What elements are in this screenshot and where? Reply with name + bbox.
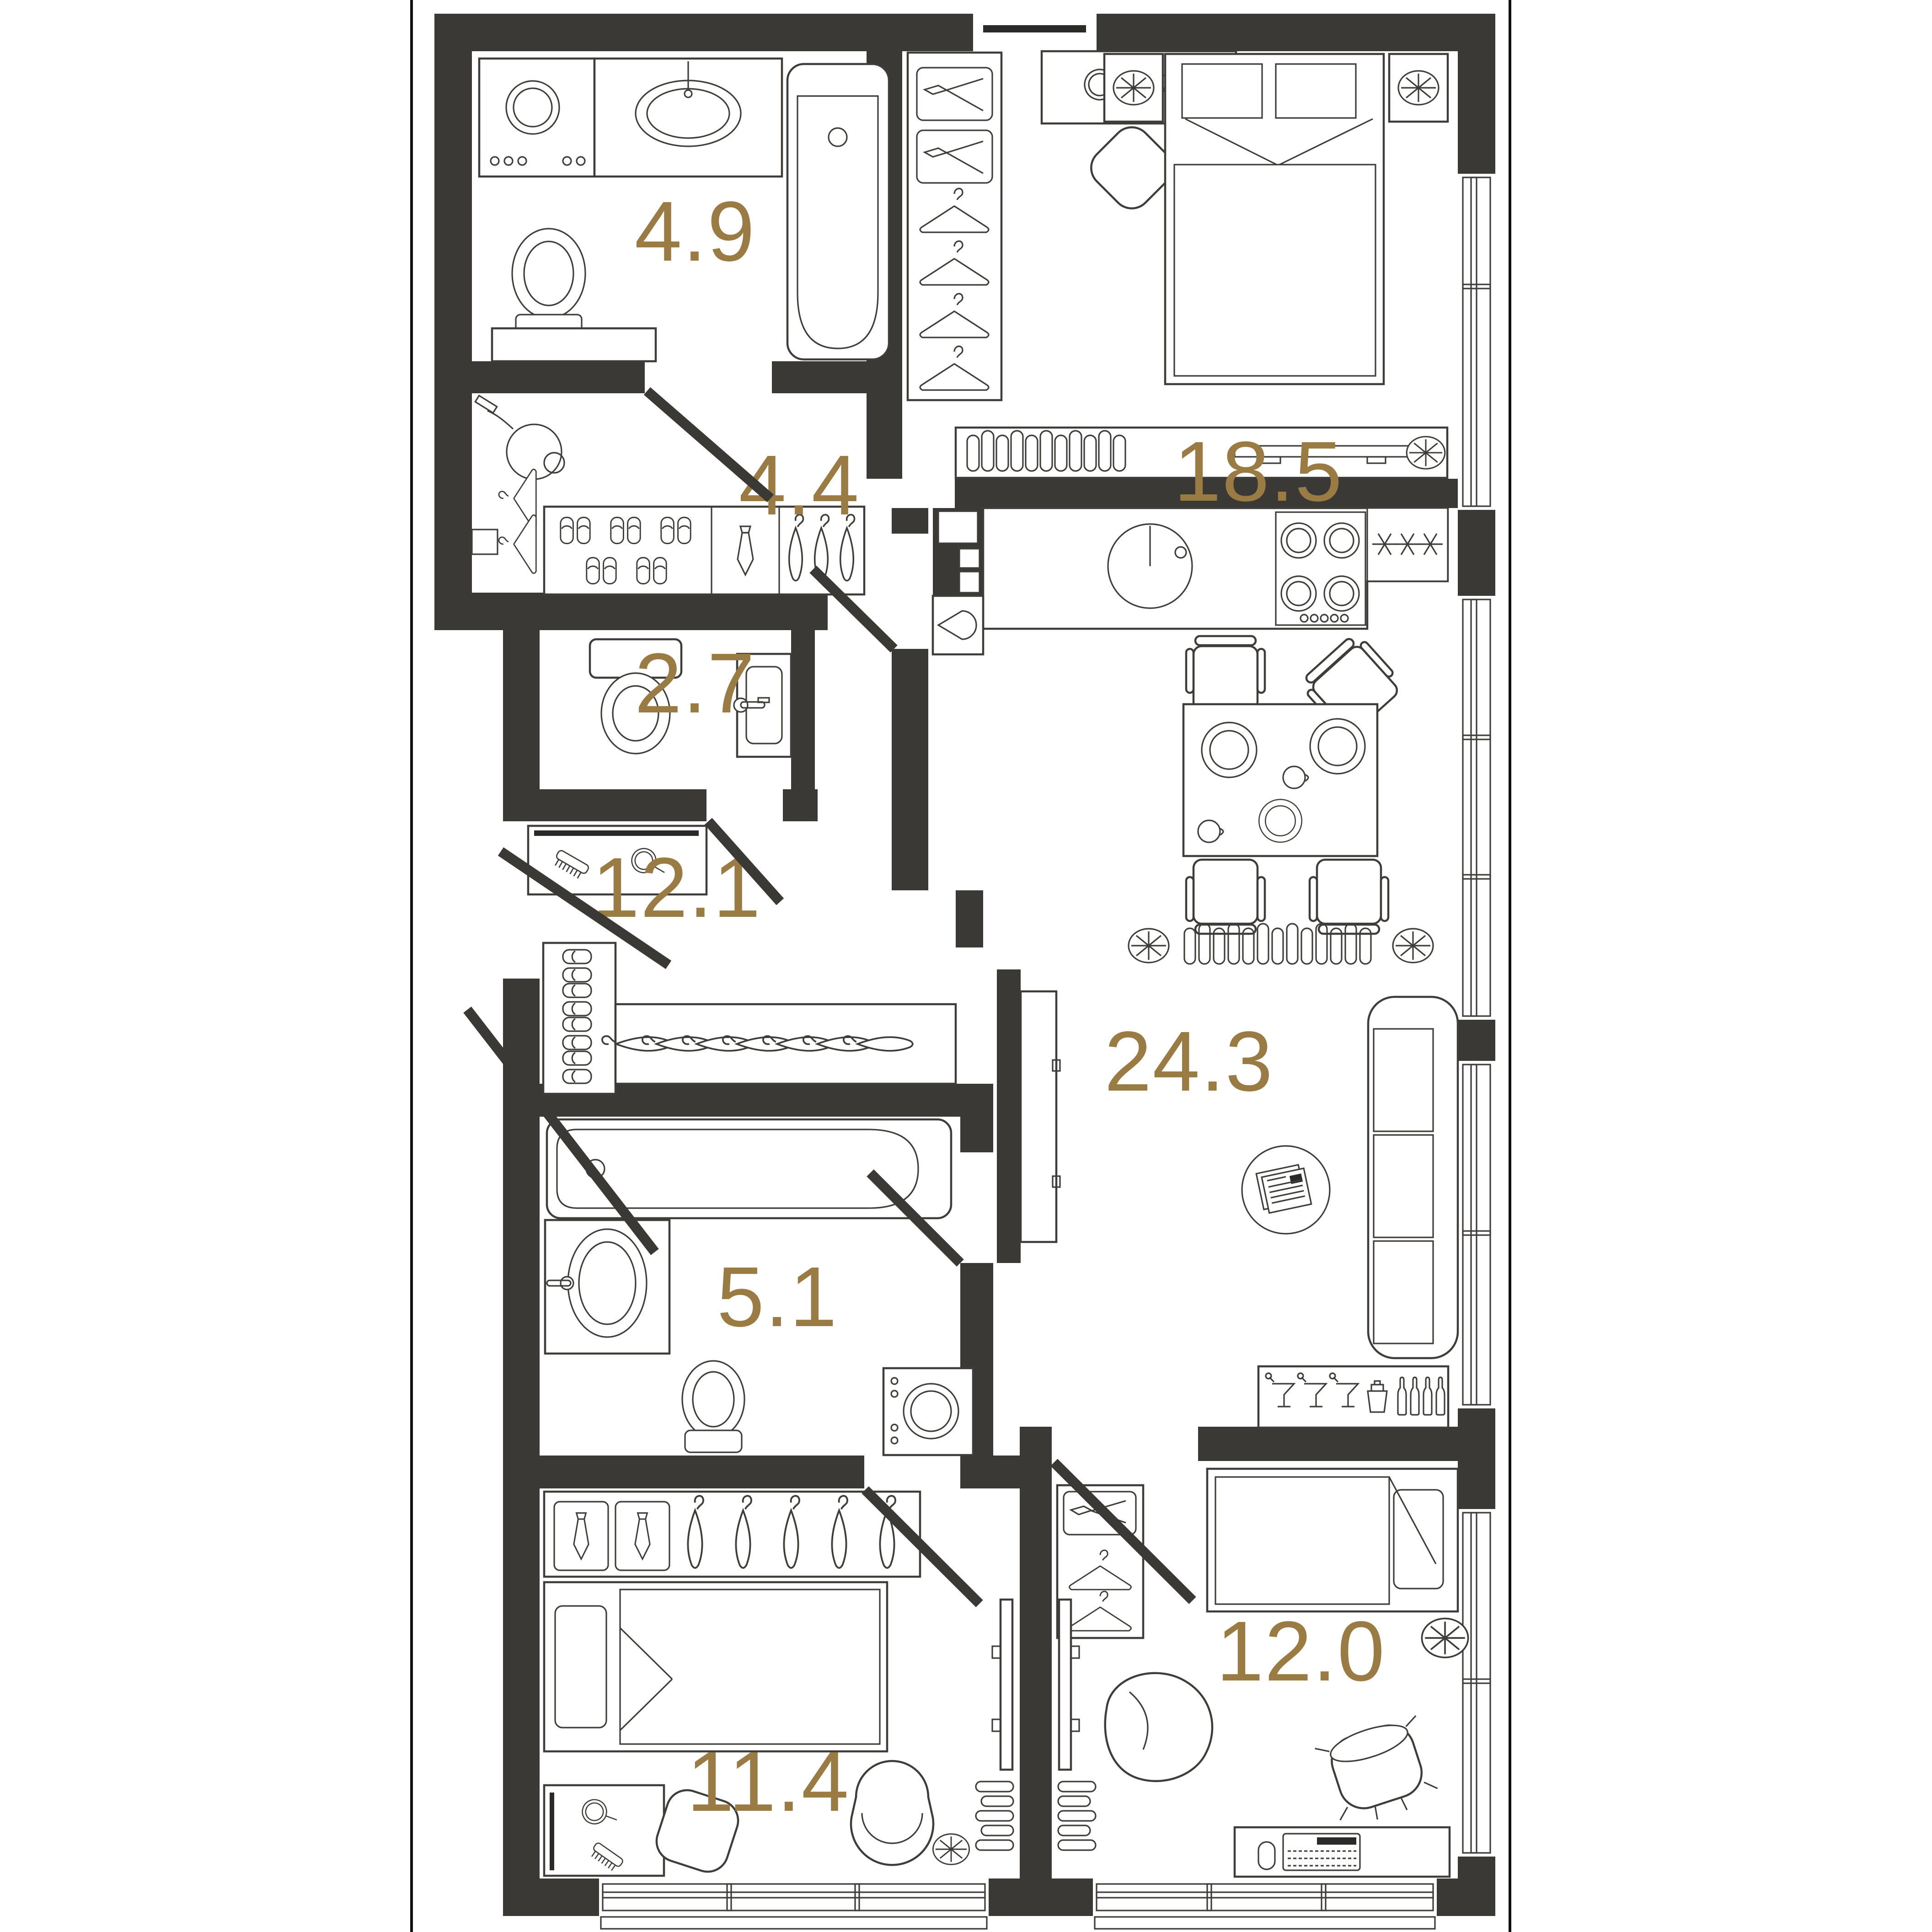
duct-niche [959,549,979,568]
window-bedroom-main-icon [1458,174,1495,510]
single-bed-icon [1207,1469,1458,1611]
radiator-icon [1058,1782,1096,1850]
single-bed-icon [544,1582,887,1751]
room-area-label-bedroom-left: 11.4 [687,1734,850,1829]
room-area-label-bedroom-right: 12.0 [1216,1604,1386,1699]
shoe-shelf-icon [543,943,615,1094]
radiator-icon [933,1782,1013,1864]
duct-niche [938,511,978,543]
fan-icon [1407,437,1445,469]
bean-bag-icon [1105,1673,1212,1781]
wardrobe-icon [544,1492,920,1577]
plate-icon [1202,722,1257,777]
hanger-icon [499,515,536,573]
tv-icon [1021,991,1060,1242]
washing-machine-icon [479,59,594,177]
plate-icon [1310,719,1365,774]
stove-icon [1276,512,1365,625]
toilet-icon [682,1361,744,1452]
corner-duct-box [472,530,498,554]
bathroom-counter [492,328,656,361]
fan-icon [1129,929,1169,963]
stool-icon [1314,1714,1443,1831]
newspaper-table-icon [1242,1146,1330,1234]
window-kitchen-icon [1458,596,1495,1020]
dressing-table-icon [544,1785,664,1876]
window-bedroom-left-icon [599,1878,989,1929]
window-living-icon [1458,1061,1495,1408]
wall-mirror-icon [983,25,1086,32]
room-bathroom-top: 4.9 [479,59,889,361]
window-bedroom-right-bottom-icon [1093,1878,1437,1929]
sofa-icon [1368,997,1458,1358]
nightstand-lamp-icon [1104,54,1163,122]
room-area-label-living-kitchen: 24.3 [1104,1014,1274,1109]
mirror-icon [550,1793,554,1870]
room-hallway: 4.4 [475,396,864,594]
wardrobe-rail-icon [602,1004,956,1084]
kitchen-counter-icon [983,508,1448,629]
mouse-icon [1258,1842,1275,1869]
vacuum-cleaner-icon [475,396,564,479]
desk-icon [1235,1827,1450,1877]
double-bed-icon [1165,54,1384,384]
room-area-label-bathroom-lower: 5.1 [717,1250,838,1344]
window-bedroom-right-icon [1458,1509,1495,1857]
radiator-icon [1129,924,1433,964]
bathtub-icon [547,1119,951,1218]
room-bedroom-left: 11.4 [544,1492,1013,1877]
plate-icon [1259,799,1302,842]
fan-icon [1422,1618,1468,1657]
fridge-snowflake-icon [1367,508,1448,581]
chair-icon [1186,636,1265,710]
fan-icon [1393,929,1433,963]
room-bedroom-main: 18.5 [908,51,1448,519]
room-bathroom-lower: 5.1 [545,1119,973,1455]
room-living-kitchen: 24.3 [933,508,1458,1428]
chair-icon [1186,860,1265,934]
duct-niche [959,572,979,593]
bathtub-icon [787,64,889,359]
sink-icon [594,59,782,177]
water-point-icon [933,596,983,654]
tv-icon [992,1600,1012,1770]
nightstand-lamp-icon [1389,54,1448,122]
desk-keyboard-icon [1283,1834,1360,1870]
washing-machine-icon [883,1368,973,1455]
room-area-label-bedroom-main: 18.5 [1174,424,1343,519]
floor-plan-drawing: 4.9 4.4 [0,0,1932,1932]
chair-icon [1310,860,1388,934]
armchair-icon [851,1761,933,1865]
floor-plan-page: 4.9 4.4 [0,0,1932,1932]
bar-cabinet-icon [1258,1366,1448,1428]
room-wc: 2.7 [590,636,791,757]
room-area-label-bathroom-top: 4.9 [635,184,756,279]
dining-table-icon [1183,631,1406,934]
fan-icon [933,1834,969,1865]
room-area-label-wc: 2.7 [635,636,756,731]
wardrobe-icon [908,53,1001,400]
